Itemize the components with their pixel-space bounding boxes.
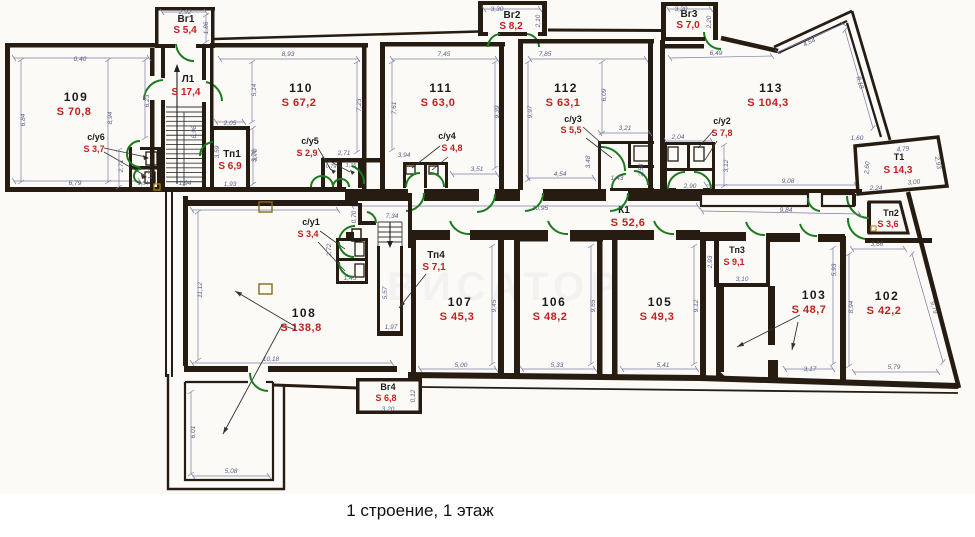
svg-text:2,92: 2,92: [178, 9, 192, 16]
svg-text:2,90: 2,90: [683, 183, 697, 190]
svg-text:1,54: 1,54: [138, 181, 149, 187]
svg-text:7,45: 7,45: [438, 51, 451, 58]
svg-text:4,54: 4,54: [554, 171, 567, 178]
svg-text:102: 102: [875, 289, 900, 303]
svg-text:2,72: 2,72: [326, 243, 333, 257]
svg-text:6,79: 6,79: [69, 180, 82, 187]
svg-text:6,09: 6,09: [601, 88, 608, 101]
svg-text:5,93: 5,93: [831, 263, 838, 276]
svg-text:9,12: 9,12: [693, 299, 700, 312]
svg-text:2,58: 2,58: [638, 163, 645, 177]
svg-text:S 3,4: S 3,4: [297, 229, 318, 239]
svg-text:с/у2: с/у2: [713, 116, 731, 126]
svg-text:7,85: 7,85: [539, 51, 552, 58]
svg-text:0,70: 0,70: [351, 210, 358, 223]
svg-text:4,79: 4,79: [896, 145, 910, 153]
svg-text:9,65: 9,65: [590, 299, 597, 312]
svg-text:Тп4: Тп4: [427, 250, 445, 261]
svg-text:5,41: 5,41: [657, 362, 670, 369]
svg-text:5,33: 5,33: [551, 362, 564, 369]
svg-text:S 7,8: S 7,8: [711, 128, 732, 138]
svg-text:2,71: 2,71: [337, 150, 351, 157]
svg-text:1,43: 1,43: [611, 175, 624, 182]
svg-text:S 14,3: S 14,3: [884, 165, 913, 176]
svg-text:3,17: 3,17: [804, 366, 817, 373]
svg-text:107: 107: [448, 295, 473, 309]
svg-text:S 67,2: S 67,2: [282, 97, 317, 109]
svg-text:S 48,7: S 48,7: [792, 304, 827, 316]
svg-text:5,79: 5,79: [888, 364, 901, 371]
svg-text:7,61: 7,61: [391, 101, 398, 114]
svg-text:S 52,6: S 52,6: [611, 217, 646, 229]
svg-text:8,94: 8,94: [848, 300, 855, 313]
svg-text:S 7,1: S 7,1: [422, 262, 446, 273]
svg-text:6,49: 6,49: [710, 50, 723, 57]
svg-text:3,51: 3,51: [471, 166, 484, 173]
svg-text:S 7,0: S 7,0: [676, 20, 700, 31]
svg-text:3,00: 3,00: [907, 179, 920, 187]
svg-text:S 9,1: S 9,1: [723, 257, 744, 267]
svg-text:1,45: 1,45: [344, 275, 357, 282]
svg-text:S 6,8: S 6,8: [375, 393, 396, 403]
svg-text:2,04: 2,04: [671, 134, 685, 141]
svg-text:3,10: 3,10: [736, 276, 749, 283]
svg-text:с/у1: с/у1: [302, 217, 320, 227]
svg-text:105: 105: [648, 295, 673, 309]
svg-text:с/у3: с/у3: [564, 114, 582, 124]
svg-text:3,70: 3,70: [252, 148, 259, 161]
svg-text:111: 111: [429, 81, 452, 95]
svg-text:9,08: 9,08: [782, 178, 795, 185]
svg-text:S 70,8: S 70,8: [57, 106, 92, 118]
svg-text:S 3,6: S 3,6: [877, 219, 898, 229]
svg-text:9,84: 9,84: [780, 207, 793, 214]
svg-text:S 4,8: S 4,8: [441, 143, 462, 153]
svg-text:0,79: 0,79: [326, 164, 337, 170]
svg-text:108: 108: [292, 306, 317, 320]
svg-text:Вг4: Вг4: [380, 382, 395, 392]
svg-text:1,94: 1,94: [179, 180, 192, 187]
svg-text:0,12: 0,12: [410, 389, 417, 402]
svg-text:S 49,3: S 49,3: [640, 311, 675, 323]
svg-text:S 138,8: S 138,8: [280, 322, 321, 334]
svg-text:с/у6: с/у6: [87, 132, 105, 142]
svg-text:с/у5: с/у5: [301, 136, 319, 146]
svg-text:7,34: 7,34: [386, 213, 399, 220]
svg-text:8,93: 8,93: [282, 51, 295, 58]
svg-text:5,14: 5,14: [251, 83, 258, 96]
svg-text:S 5,4: S 5,4: [173, 25, 197, 36]
svg-text:6,01: 6,01: [190, 425, 197, 438]
svg-text:3,21: 3,21: [619, 125, 632, 132]
svg-text:S 63,1: S 63,1: [546, 97, 581, 109]
svg-text:3,12: 3,12: [723, 159, 730, 172]
svg-text:S 45,3: S 45,3: [440, 311, 475, 323]
svg-text:S 8,2: S 8,2: [499, 21, 523, 32]
svg-text:103: 103: [802, 288, 827, 302]
svg-text:S 3,7: S 3,7: [83, 144, 104, 154]
svg-text:2,71: 2,71: [118, 159, 125, 173]
svg-text:S 6,9: S 6,9: [218, 161, 242, 172]
svg-text:2,60: 2,60: [863, 161, 871, 176]
svg-text:1,93: 1,93: [224, 181, 237, 188]
svg-text:8,98: 8,98: [191, 125, 198, 138]
svg-text:10,18: 10,18: [263, 356, 280, 363]
svg-text:9,45: 9,45: [491, 299, 498, 312]
svg-text:S 2,9: S 2,9: [296, 148, 317, 158]
svg-text:2,24: 2,24: [869, 185, 883, 192]
svg-text:3,94: 3,94: [398, 152, 411, 159]
svg-text:S 104,3: S 104,3: [747, 97, 788, 109]
svg-text:К1: К1: [618, 205, 630, 216]
svg-text:5,08: 5,08: [225, 468, 238, 475]
svg-text:5,00: 5,00: [455, 362, 468, 369]
svg-text:9,97: 9,97: [527, 105, 534, 118]
svg-text:1,97: 1,97: [385, 324, 398, 331]
svg-text:7,23: 7,23: [356, 98, 363, 111]
svg-text:1,37: 1,37: [148, 168, 154, 180]
svg-text:5,57: 5,57: [382, 286, 389, 299]
svg-text:6,84: 6,84: [20, 113, 27, 126]
svg-text:Т1: Т1: [894, 152, 905, 162]
svg-text:S 17,4: S 17,4: [172, 87, 201, 98]
svg-text:3,20: 3,20: [675, 6, 688, 13]
svg-text:11,12: 11,12: [197, 282, 204, 298]
svg-text:Тп2: Тп2: [883, 208, 899, 218]
svg-text:6,23: 6,23: [144, 94, 151, 107]
svg-text:1 строение, 1 этаж: 1 строение, 1 этаж: [346, 501, 494, 520]
svg-text:2,10: 2,10: [535, 14, 542, 28]
svg-text:1,86: 1,86: [203, 21, 210, 34]
svg-text:3,30: 3,30: [491, 6, 504, 13]
svg-text:Вг2: Вг2: [504, 10, 521, 21]
svg-text:3,66: 3,66: [871, 241, 884, 248]
svg-text:с/у4: с/у4: [438, 131, 456, 141]
svg-text:3,59: 3,59: [214, 145, 221, 158]
svg-text:Тп3: Тп3: [729, 245, 745, 255]
svg-text:Тп1: Тп1: [223, 149, 241, 160]
svg-text:S 42,2: S 42,2: [867, 305, 902, 317]
svg-text:9,39: 9,39: [494, 105, 501, 118]
svg-text:0,40: 0,40: [74, 56, 87, 63]
svg-text:2,20: 2,20: [706, 15, 713, 29]
svg-text:S 63,0: S 63,0: [421, 97, 456, 109]
svg-text:110: 110: [289, 81, 313, 95]
svg-text:113: 113: [759, 81, 783, 95]
svg-text:112: 112: [554, 81, 578, 95]
svg-text:Л1: Л1: [182, 74, 195, 85]
svg-text:3,20: 3,20: [382, 406, 395, 413]
svg-text:S 48,2: S 48,2: [533, 311, 568, 323]
svg-text:106: 106: [542, 295, 567, 309]
svg-text:3,48: 3,48: [585, 155, 592, 168]
svg-text:2,93: 2,93: [707, 255, 714, 269]
svg-text:109: 109: [64, 90, 89, 104]
svg-text:1,60: 1,60: [851, 135, 864, 142]
svg-text:S 5,5: S 5,5: [560, 125, 581, 135]
svg-text:8,94: 8,94: [107, 111, 114, 124]
svg-text:2,05: 2,05: [223, 120, 237, 127]
